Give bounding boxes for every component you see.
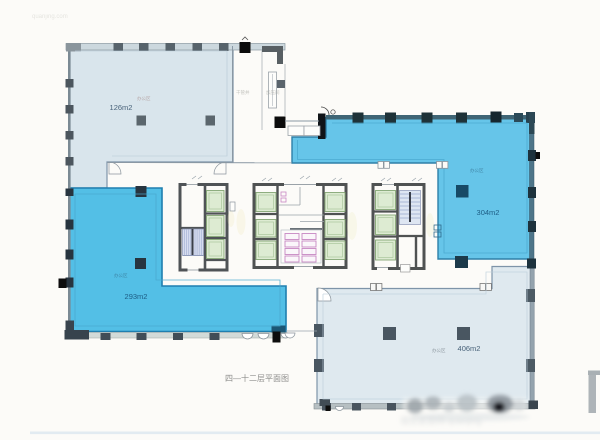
svg-text:理想家居网 quanjing: 理想家居网 quanjing [400,415,482,426]
svg-text:办公区: 办公区 [137,95,151,102]
svg-text:加压间: 加压间 [266,89,280,96]
svg-text:293m2: 293m2 [125,292,148,301]
svg-text:126m2: 126m2 [110,103,133,112]
svg-text:四—十二层平面图: 四—十二层平面图 [225,373,289,383]
svg-text:406m2: 406m2 [458,344,481,353]
svg-text:干管井: 干管井 [236,89,250,96]
svg-text:304m2: 304m2 [477,208,500,217]
svg-text:办公区: 办公区 [432,347,446,354]
svg-text:办公区: 办公区 [470,167,484,174]
svg-text:办公区: 办公区 [114,272,128,279]
svg-text:quanjing.com: quanjing.com [32,14,68,20]
